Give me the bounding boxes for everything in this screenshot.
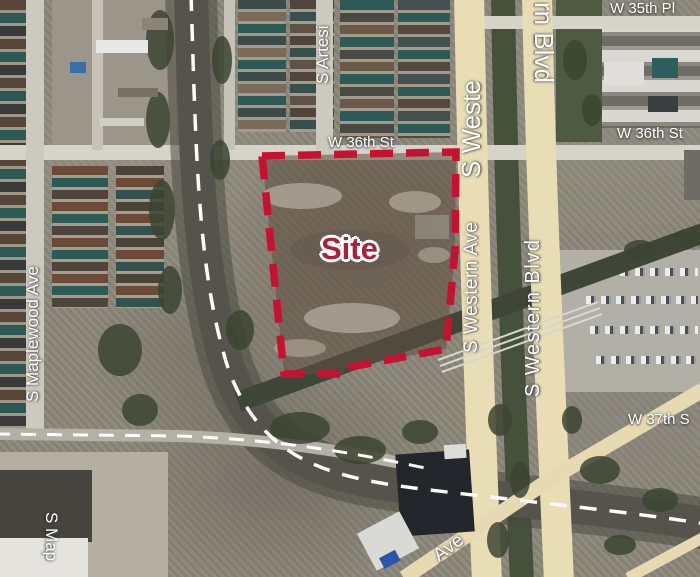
- street-label-w36th-left: W 36th St: [328, 135, 394, 150]
- street-label-maplewood: S Maplewood Ave: [24, 266, 41, 402]
- street-label-western-blvd: S Western Blvd: [523, 239, 543, 397]
- street-label-w37th: W 37th S: [628, 412, 690, 427]
- street-label-western-ave: S Western Ave: [462, 222, 481, 353]
- street-label-western-upper: S Weste: [458, 80, 484, 178]
- site-label: Site: [321, 231, 378, 267]
- street-label-western-blvd-upper: rn Blvd: [531, 2, 557, 83]
- street-label-w36th-right: W 36th St: [617, 126, 683, 141]
- street-label-w35th-pl: W 35th Pl: [610, 1, 675, 16]
- aerial-photo: Site W 35th Pl W 36th St W 36th St W 37t…: [0, 0, 700, 577]
- street-w35th: [480, 16, 700, 29]
- street-minor-1: [92, 0, 103, 150]
- map-graphics: [0, 0, 700, 577]
- street-label-maplewood-lower: S Map: [43, 512, 60, 561]
- street-label-artesian: S Artesi: [314, 25, 331, 84]
